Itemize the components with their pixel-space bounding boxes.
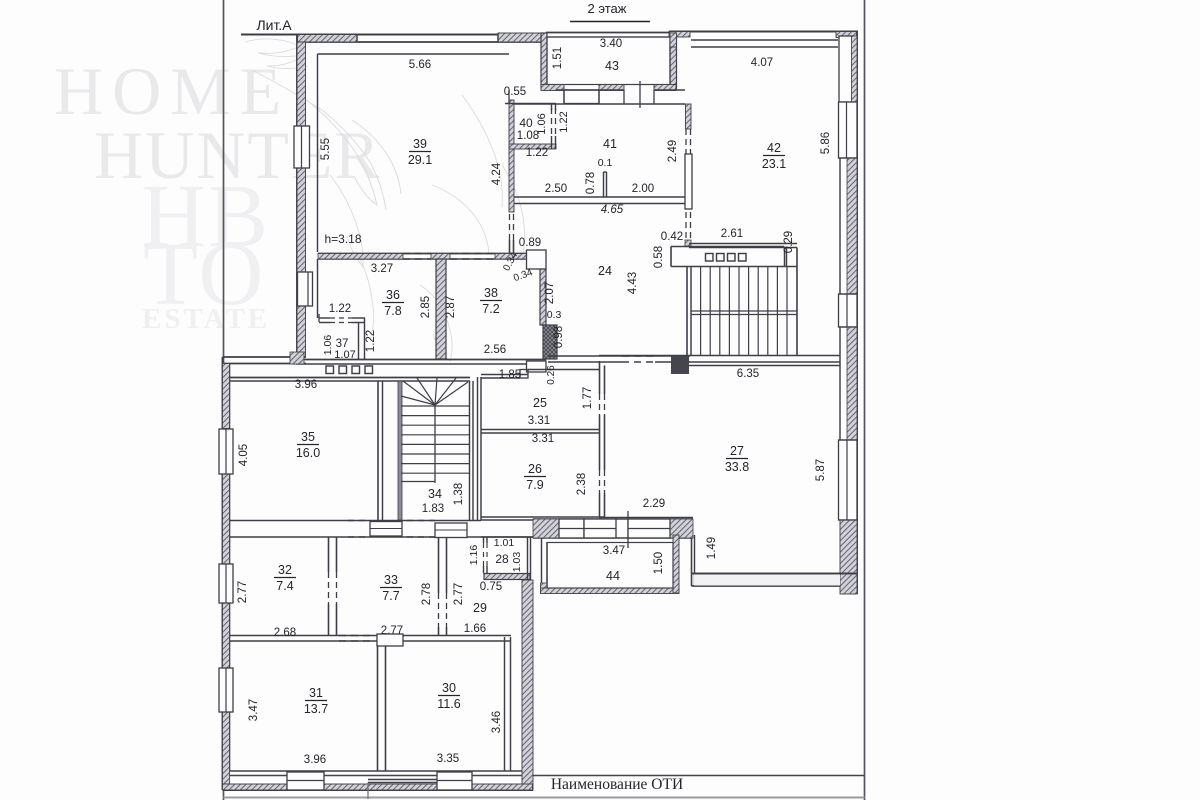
svg-text:1.08: 1.08 [517, 130, 539, 142]
svg-text:ESTATE: ESTATE [142, 303, 270, 335]
svg-text:7.8: 7.8 [384, 304, 401, 318]
svg-text:36: 36 [386, 288, 400, 302]
svg-text:42: 42 [767, 141, 781, 155]
svg-text:23.1: 23.1 [762, 157, 786, 171]
svg-text:4.65: 4.65 [601, 204, 624, 216]
svg-text:1.83: 1.83 [422, 503, 444, 515]
svg-text:0.1: 0.1 [598, 157, 613, 169]
svg-text:7.9: 7.9 [526, 478, 543, 492]
svg-text:Наименование ОТИ: Наименование ОТИ [551, 776, 683, 793]
svg-text:2 этаж: 2 этаж [588, 1, 627, 16]
svg-text:7.4: 7.4 [276, 579, 293, 593]
svg-text:4.05: 4.05 [238, 444, 250, 466]
svg-text:11.6: 11.6 [437, 697, 460, 711]
svg-text:1.85: 1.85 [499, 369, 521, 381]
svg-text:39: 39 [413, 137, 427, 151]
svg-text:4.07: 4.07 [751, 57, 773, 69]
svg-text:2.56: 2.56 [484, 344, 506, 356]
svg-text:26: 26 [528, 462, 542, 476]
svg-text:1.51: 1.51 [552, 47, 564, 69]
svg-text:h=3.18: h=3.18 [324, 232, 361, 246]
svg-text:1.22: 1.22 [558, 111, 570, 132]
svg-text:1.22: 1.22 [526, 147, 548, 159]
svg-text:3.31: 3.31 [532, 433, 554, 445]
svg-text:3.40: 3.40 [600, 38, 622, 50]
svg-text:2.61: 2.61 [721, 228, 743, 240]
svg-text:35: 35 [301, 430, 315, 444]
svg-text:5.86: 5.86 [820, 132, 832, 154]
svg-text:38: 38 [484, 286, 498, 300]
svg-text:27: 27 [730, 444, 744, 458]
svg-text:5.66: 5.66 [409, 59, 431, 71]
svg-text:5.55: 5.55 [320, 138, 332, 160]
svg-text:28: 28 [495, 552, 509, 566]
svg-text:2.77: 2.77 [453, 583, 465, 605]
svg-text:13.7: 13.7 [304, 702, 328, 716]
svg-text:2.07: 2.07 [544, 282, 556, 304]
svg-text:1.07: 1.07 [334, 349, 355, 361]
svg-text:32: 32 [278, 563, 292, 577]
svg-text:34: 34 [428, 487, 442, 501]
svg-text:0.3: 0.3 [547, 309, 562, 321]
svg-text:3.35: 3.35 [437, 753, 459, 765]
svg-text:0.89: 0.89 [519, 237, 541, 249]
svg-text:0.55: 0.55 [504, 86, 526, 98]
svg-text:1.06: 1.06 [322, 335, 334, 356]
svg-text:33.8: 33.8 [725, 460, 749, 474]
svg-text:40: 40 [519, 116, 533, 130]
svg-text:1.50: 1.50 [653, 552, 665, 574]
svg-text:2.87: 2.87 [445, 296, 457, 318]
svg-text:1.38: 1.38 [453, 483, 465, 505]
svg-text:2.38: 2.38 [576, 473, 588, 495]
svg-text:2.78: 2.78 [421, 583, 433, 605]
svg-text:2.68: 2.68 [274, 627, 296, 639]
svg-text:25: 25 [533, 396, 547, 410]
svg-text:0.75: 0.75 [480, 581, 502, 593]
svg-text:2.00: 2.00 [632, 183, 654, 195]
svg-text:5.87: 5.87 [815, 459, 827, 481]
svg-text:30: 30 [442, 681, 456, 695]
svg-text:0.29: 0.29 [783, 231, 795, 253]
svg-text:4.43: 4.43 [627, 272, 639, 294]
svg-text:33: 33 [384, 573, 398, 587]
svg-text:0.78: 0.78 [585, 172, 597, 194]
svg-text:2.49: 2.49 [667, 140, 679, 162]
svg-text:1.16: 1.16 [468, 545, 480, 566]
svg-text:2.77: 2.77 [237, 581, 249, 603]
svg-text:3.27: 3.27 [371, 263, 393, 275]
svg-text:Лит.А: Лит.А [256, 17, 292, 33]
svg-text:31: 31 [309, 686, 323, 700]
svg-text:4.24: 4.24 [491, 162, 503, 185]
svg-text:16.0: 16.0 [296, 446, 320, 460]
svg-text:2.50: 2.50 [545, 183, 567, 195]
svg-text:3.96: 3.96 [295, 379, 317, 391]
svg-text:0.26: 0.26 [546, 365, 557, 385]
svg-text:0.42: 0.42 [661, 231, 683, 243]
svg-text:29.1: 29.1 [408, 153, 432, 167]
svg-text:3.31: 3.31 [528, 415, 550, 427]
svg-text:7.2: 7.2 [482, 302, 499, 316]
svg-text:7.7: 7.7 [382, 589, 399, 603]
svg-text:3.96: 3.96 [304, 754, 326, 766]
svg-text:1.01: 1.01 [494, 537, 515, 549]
svg-text:2.29: 2.29 [643, 498, 665, 510]
svg-text:29: 29 [473, 601, 487, 615]
svg-text:3.47: 3.47 [248, 699, 260, 721]
svg-text:2.85: 2.85 [420, 296, 432, 318]
svg-text:1.49: 1.49 [706, 537, 718, 559]
svg-text:24: 24 [598, 264, 612, 278]
svg-text:1.66: 1.66 [464, 623, 486, 635]
svg-text:1.77: 1.77 [582, 387, 594, 409]
svg-text:1.22: 1.22 [365, 330, 377, 352]
svg-text:3.46: 3.46 [491, 711, 503, 733]
svg-text:0.58: 0.58 [653, 246, 665, 268]
svg-text:41: 41 [603, 137, 617, 151]
svg-text:43: 43 [605, 59, 619, 73]
svg-text:1.22: 1.22 [329, 303, 351, 315]
svg-text:1.03: 1.03 [511, 552, 523, 573]
svg-text:2.77: 2.77 [381, 625, 403, 637]
svg-text:44: 44 [606, 569, 620, 583]
svg-text:6.35: 6.35 [737, 368, 759, 380]
svg-text:0.98: 0.98 [553, 326, 565, 348]
svg-text:3.47: 3.47 [603, 545, 625, 557]
